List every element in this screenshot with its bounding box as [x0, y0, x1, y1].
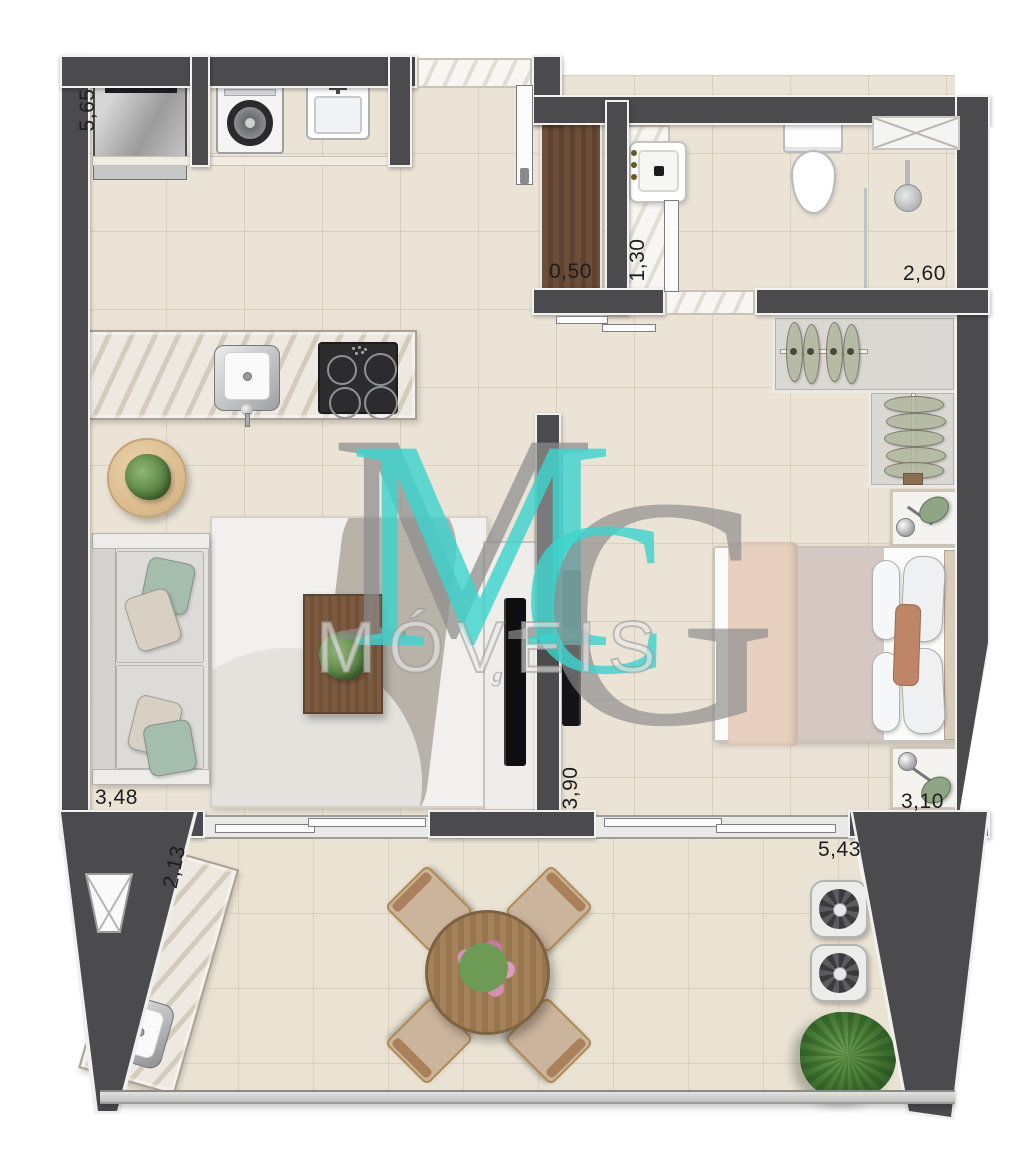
kitchen-sink-drain — [243, 372, 252, 381]
kitchen-faucet-spout — [245, 413, 250, 427]
hanger-hook — [790, 348, 797, 355]
shower-glass-partition — [864, 188, 867, 292]
bathroom-faucet — [654, 166, 664, 176]
hanger — [884, 396, 944, 413]
sofa-backrest — [92, 533, 116, 785]
dim-bedroom: 3,10 — [901, 790, 944, 814]
hanger — [886, 413, 946, 430]
wall-balcony-right-diagonal — [845, 810, 993, 1120]
shower-niche — [872, 116, 960, 150]
balcony-railing — [100, 1090, 955, 1104]
hanger-hook — [847, 348, 854, 355]
bathroom-tap-knob — [631, 150, 637, 156]
laundry-sink-basin — [314, 96, 362, 134]
wall-center — [535, 413, 561, 815]
floor-plan: 5,65 0,50 1,30 2,60 3,48 3,90 3,10 5,43 … — [0, 0, 1024, 1164]
hanger-hook — [807, 348, 814, 355]
bed-throw — [728, 542, 798, 746]
living-balcony-door-panel — [215, 824, 315, 833]
dim-hall: 3,90 — [559, 762, 583, 814]
dim-living: 3,48 — [95, 786, 138, 810]
lamp-base — [896, 518, 915, 537]
living-balcony-door-panel — [308, 818, 426, 827]
entrance-threshold — [417, 58, 532, 88]
dim-bathroom: 1,30 — [626, 234, 650, 286]
shower-head — [894, 184, 922, 212]
dining-table-flowers — [452, 938, 522, 1004]
laundry-counter-edge — [92, 156, 390, 166]
bedroom-balcony-door-panel — [604, 818, 722, 827]
hanger-hook — [830, 348, 837, 355]
wall-stub-laundry — [388, 55, 412, 167]
dim-entry-cabinet: 0,50 — [549, 260, 592, 284]
wall-left — [60, 55, 90, 815]
closet-rod-base — [903, 473, 923, 485]
wall-below-bathroom — [532, 288, 665, 315]
dim-kitchen-top: 5,65 — [76, 84, 100, 136]
bathroom-door — [664, 200, 679, 292]
toilet-tank — [783, 121, 843, 153]
tv-living — [504, 598, 526, 766]
coffee-table-plant — [319, 632, 367, 680]
dim-shower: 2,60 — [903, 262, 946, 286]
bed-accent-cushion — [893, 604, 922, 687]
bedroom-balcony-door-panel — [716, 824, 836, 833]
bedroom-sliding-door — [556, 316, 608, 324]
sofa-armrest-top — [92, 533, 210, 549]
wall-right — [955, 95, 990, 817]
cooktop — [318, 342, 398, 414]
bedroom-sliding-door — [602, 324, 656, 332]
washing-machine-panel — [224, 89, 276, 96]
bathroom-threshold — [665, 290, 755, 315]
wall-below-bathroom — [755, 288, 990, 315]
bed-duvet — [796, 548, 884, 740]
sofa-pillow-green — [142, 718, 198, 778]
wall-center-base — [428, 810, 596, 838]
entrance-door-handle — [520, 168, 529, 184]
dim-balcony: 5,43 — [818, 838, 861, 862]
side-table-plant — [125, 454, 171, 500]
lamp-base — [898, 752, 917, 771]
wall-top — [60, 55, 417, 88]
pillar-marker — [82, 872, 136, 934]
wall-stub-laundry — [190, 55, 210, 167]
bathroom-tap-knob — [631, 162, 637, 168]
hanger — [884, 430, 944, 447]
tv-bedroom — [562, 570, 581, 726]
washing-machine-hub — [245, 118, 255, 128]
bathroom-tap-knob — [631, 174, 637, 180]
